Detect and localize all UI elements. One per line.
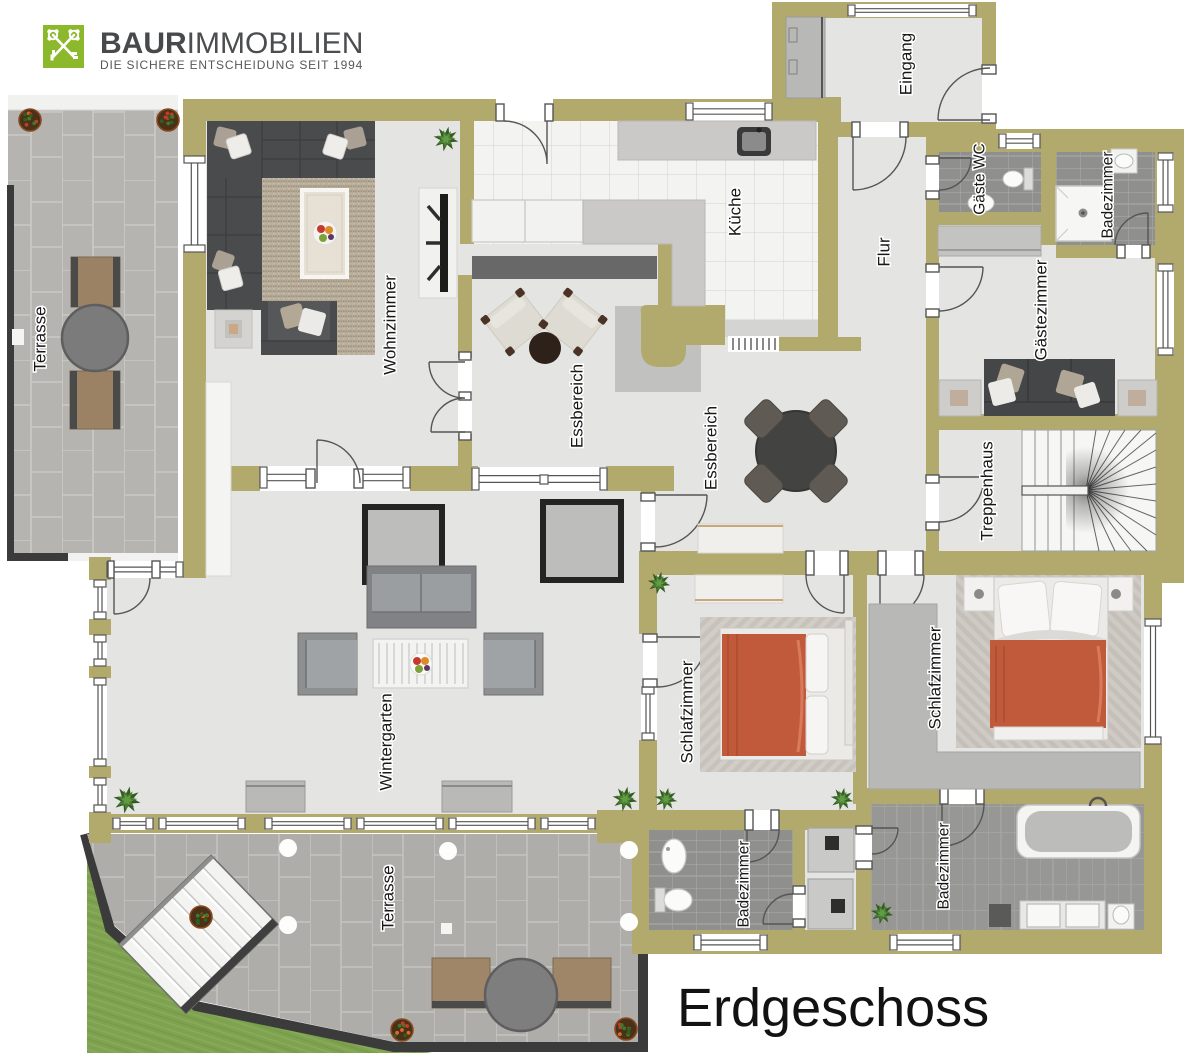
- svg-text:Wintergarten: Wintergarten: [377, 693, 396, 790]
- svg-text:Gäste WC: Gäste WC: [972, 143, 989, 214]
- svg-text:Flur: Flur: [875, 237, 894, 267]
- svg-text:Gästezimmer: Gästezimmer: [1032, 259, 1051, 360]
- svg-text:DIE SICHERE ENTSCHEIDUNG SEIT: DIE SICHERE ENTSCHEIDUNG SEIT 1994: [100, 58, 363, 72]
- svg-text:Essbereich: Essbereich: [702, 406, 721, 490]
- svg-text:Treppenhaus: Treppenhaus: [978, 441, 997, 541]
- svg-text:Schlafzimmer: Schlafzimmer: [926, 626, 945, 729]
- svg-text:Badezimmer: Badezimmer: [736, 841, 753, 928]
- svg-text:Badezimmer: Badezimmer: [1100, 152, 1117, 239]
- svg-text:BAURIMMOBILIEN: BAURIMMOBILIEN: [100, 27, 363, 60]
- svg-text:Eingang: Eingang: [897, 33, 916, 95]
- svg-text:Wohnzimmer: Wohnzimmer: [381, 275, 400, 375]
- svg-text:Küche: Küche: [726, 188, 745, 236]
- svg-text:Essbereich: Essbereich: [568, 364, 587, 448]
- svg-text:Terrasse: Terrasse: [31, 306, 50, 371]
- svg-text:Schlafzimmer: Schlafzimmer: [678, 660, 697, 763]
- svg-text:Erdgeschoss: Erdgeschoss: [677, 978, 989, 1038]
- svg-text:Terrasse: Terrasse: [379, 865, 398, 930]
- svg-text:Badezimmer: Badezimmer: [936, 823, 953, 910]
